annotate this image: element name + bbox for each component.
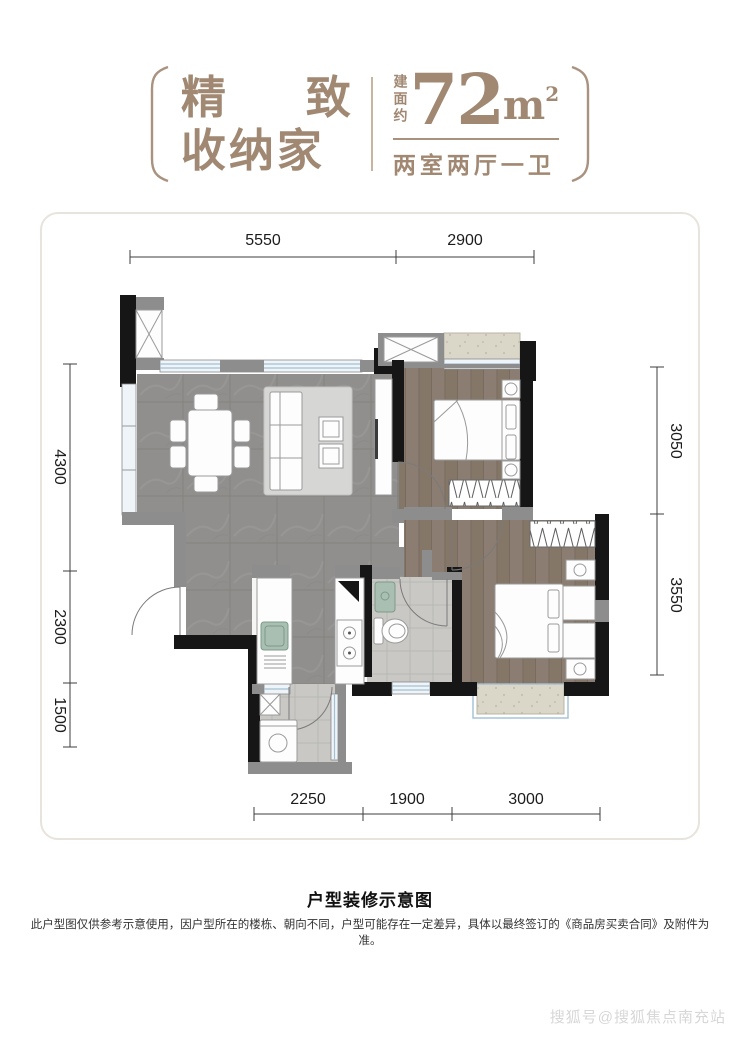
dim-left: 4300 2300 1500 [51,364,77,747]
wall [122,512,186,525]
wardrobe-2 [530,521,595,547]
dim-bottom: 2250 1900 3000 [254,791,600,821]
nightstand [566,659,595,679]
pillow [506,435,516,459]
header: 精 致 收纳家 建面约 72 m2 两室两厅一卫 [0,64,740,184]
wall [564,682,609,696]
dining-chair [194,476,218,492]
area-label: 建面约 [393,74,408,125]
wall [399,364,520,368]
area-block: 建面约 72 m2 两室两厅一卫 [393,68,559,179]
area-underline [393,138,559,140]
wall [174,525,186,587]
wall [454,682,477,696]
layout-type: 两室两厅一卫 [393,146,559,180]
dining-chair [234,446,250,468]
headline-char2: 致 [306,71,351,124]
wall [220,360,264,372]
wash-basin [375,582,395,612]
bathroom-window [392,682,430,694]
area-value: 72 [410,68,503,132]
wall [136,297,164,310]
dim-right: 3050 3550 [650,367,684,675]
dim-label: 3000 [508,791,544,808]
tv-screen [375,419,378,459]
dim-label: 2900 [447,232,483,249]
entry-door-arc [132,587,180,635]
wall [595,600,609,622]
wall [430,682,454,696]
dim-label: 1900 [389,791,425,808]
area-unit: m2 [503,84,559,126]
wall [502,507,533,520]
wall [174,635,260,649]
bedroom1-bay-window [444,333,520,361]
wall [392,509,404,523]
watermark-text: 搜狐号@搜狐焦点南充站 [550,1006,726,1027]
wall [392,360,404,462]
headboard [563,586,595,620]
wall [422,550,432,577]
floor-plan-svg: 5550 2900 4300 2300 1500 3050 3550 2250 … [42,214,698,838]
dim-top: 5550 2900 [130,232,534,264]
pillow [506,405,516,429]
wall [252,684,264,694]
dim-label: 2300 [51,609,68,645]
wall [120,295,136,387]
right-bracket-icon [569,64,593,184]
floorplan-card: 5550 2900 4300 2300 1500 3050 3550 2250 … [40,212,700,840]
sofa [270,392,302,490]
kitchen-aisle-floor [290,577,335,684]
wall [248,762,352,774]
dining-chair [170,420,186,442]
bedroom2-bay-window [477,684,564,714]
dining-chair [170,446,186,468]
pillow [548,624,559,652]
dim-label: 3550 [667,577,684,613]
area-exponent: 2 [545,82,559,106]
living-side-window [122,384,136,515]
left-bracket-icon [147,64,171,184]
headline-line2: 收纳家 [181,124,351,177]
headboard [563,623,595,658]
dim-label: 2250 [290,791,326,808]
wall [432,572,462,580]
wall [338,687,346,774]
pillow [548,590,559,618]
plan-caption: 户型装修示意图 [0,886,740,911]
nightstand [566,560,595,580]
wall [452,577,462,694]
dining-table [188,410,232,476]
toilet [382,619,408,643]
dining-chair [194,394,218,410]
headline-line1: 精 致 [181,71,351,124]
wardrobe-1 [449,480,520,506]
headline-char1: 精 [181,71,226,124]
wall [372,567,400,579]
dim-label: 4300 [51,449,68,485]
wall [520,356,533,509]
dim-label: 1500 [51,697,68,733]
disclaimer-text: 此户型图仅供参考示意使用，因户型所在的楼栋、朝向不同，户型可能存在一定差异，具体… [30,916,710,948]
dim-label: 3050 [667,423,684,459]
wall [360,360,374,372]
wall [252,565,290,578]
dim-label: 5550 [245,232,281,249]
headline: 精 致 收纳家 [181,71,351,177]
header-divider [371,77,373,171]
dining-chair [234,420,250,442]
